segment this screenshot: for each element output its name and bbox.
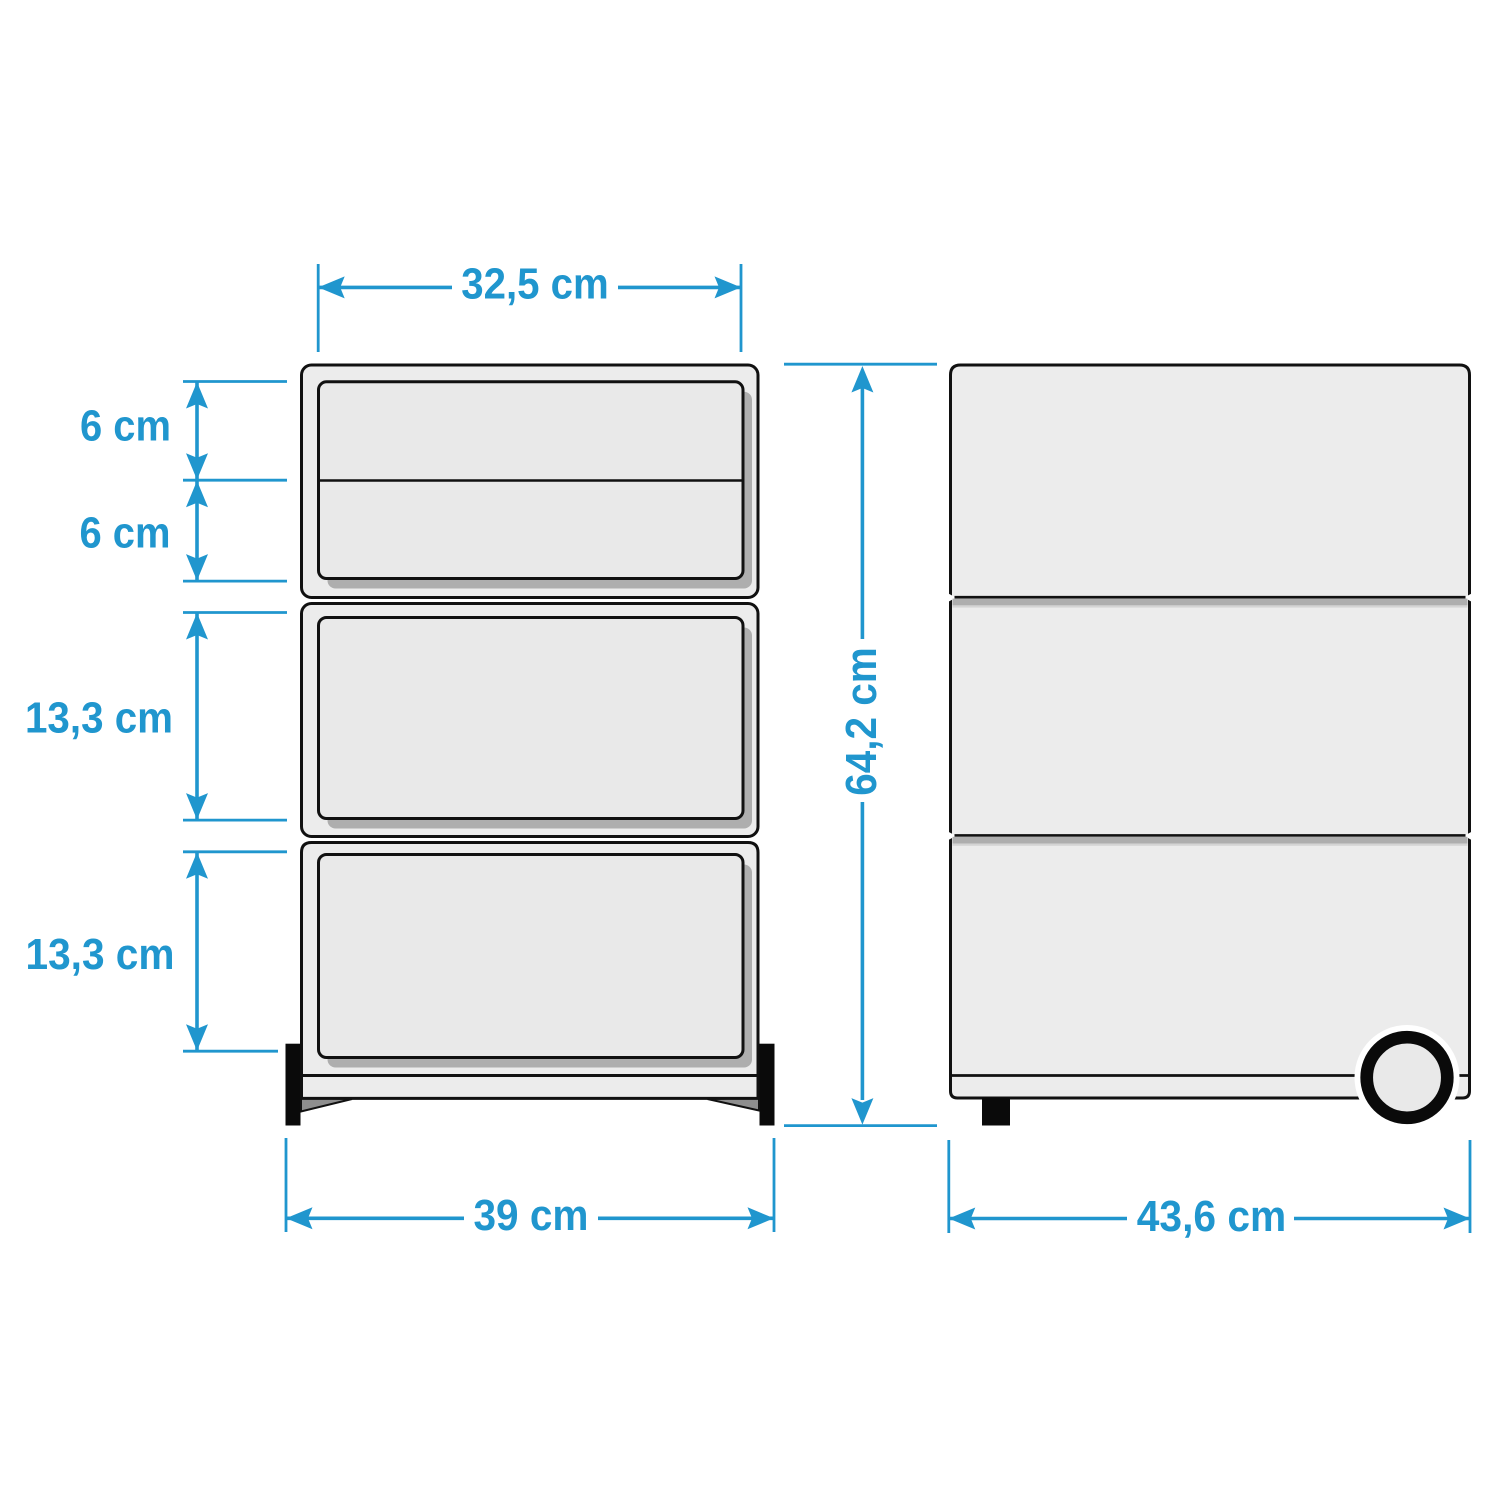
svg-text:32,5 cm: 32,5 cm: [461, 259, 609, 308]
svg-text:13,3 cm: 13,3 cm: [26, 930, 175, 979]
svg-text:39 cm: 39 cm: [474, 1191, 589, 1240]
svg-text:13,3 cm: 13,3 cm: [25, 694, 173, 743]
svg-text:6 cm: 6 cm: [80, 509, 171, 558]
svg-text:64,2 cm: 64,2 cm: [837, 647, 886, 796]
svg-text:6 cm: 6 cm: [80, 402, 171, 451]
svg-text:43,6 cm: 43,6 cm: [1137, 1192, 1287, 1241]
